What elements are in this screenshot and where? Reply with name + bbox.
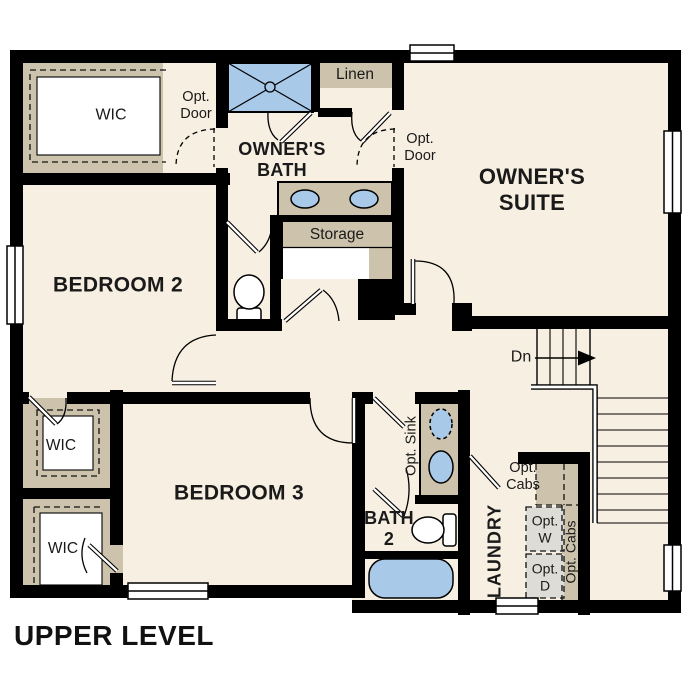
room-label-bedroom2: BEDROOM 2: [53, 274, 183, 299]
storage-interior: [283, 247, 369, 279]
opt-door-right-line2: Door: [404, 148, 435, 165]
annotation-stairs-down: Dn: [511, 349, 531, 368]
toilet-bath2-tank: [443, 514, 456, 546]
owners-sink-right: [350, 190, 378, 208]
annotation-opt-cabs-hall: Opt. Cabs: [506, 460, 540, 494]
floor-plan: WIC Opt. Door OWNER'S BATH Linen Opt. Do…: [0, 0, 687, 687]
room-label-linen: Linen: [336, 66, 374, 84]
opt-door-left-line2: Door: [180, 106, 211, 123]
toilet-owners-bowl: [234, 275, 264, 309]
room-label-bedroom3: BEDROOM 3: [174, 482, 304, 507]
opt-washer-line2: W: [532, 529, 558, 546]
room-label-laundry: LAUNDRY: [484, 504, 505, 598]
floor-plan-drawing: [0, 0, 687, 687]
chase: [358, 279, 395, 320]
optional-sink: [430, 409, 452, 439]
owners-bath-line1: OWNER'S: [238, 139, 325, 160]
owners-suite-line1: OWNER'S: [479, 164, 585, 190]
annotation-opt-sink: Opt. Sink: [403, 416, 420, 476]
bath2-line1: BATH: [364, 508, 414, 529]
room-label-storage: Storage: [310, 226, 364, 244]
opt-door-left-line1: Opt.: [180, 89, 211, 106]
room-label-bath2: BATH 2: [364, 508, 414, 550]
opt-dryer-line2: D: [532, 577, 558, 594]
opt-cabs-box: [536, 464, 580, 505]
storage-side: [369, 247, 392, 279]
opt-cabs-hall-line1: Opt.: [506, 460, 540, 477]
annotation-opt-washer: Opt. W: [532, 512, 558, 545]
bath2-sink: [429, 451, 453, 483]
room-label-wic-middle: WIC: [46, 437, 76, 455]
room-label-owners-bath: OWNER'S BATH: [238, 139, 325, 181]
shower-drain: [265, 82, 275, 92]
opt-dryer-line1: Opt.: [532, 560, 558, 577]
annotation-opt-door-left: Opt. Door: [180, 89, 211, 123]
owners-suite-line2: SUITE: [479, 190, 585, 216]
bath2-line2: 2: [364, 529, 414, 550]
opt-washer-line1: Opt.: [532, 512, 558, 529]
annotation-opt-door-right: Opt. Door: [404, 131, 435, 165]
bathtub: [369, 559, 453, 598]
plan-title: UPPER LEVEL: [14, 620, 214, 652]
room-label-wic-lower: WIC: [48, 540, 78, 558]
toilet-bath2-bowl: [412, 517, 444, 543]
annotation-opt-cabs-side: Opt. Cabs: [563, 520, 580, 583]
opt-door-right-line1: Opt.: [404, 131, 435, 148]
owners-bath-line2: BATH: [238, 160, 325, 181]
owners-sink-left: [291, 190, 319, 208]
annotation-opt-dryer: Opt. D: [532, 560, 558, 593]
room-label-wic-owners: WIC: [95, 107, 126, 126]
room-label-owners-suite: OWNER'S SUITE: [479, 164, 585, 216]
opt-cabs-hall-line2: Cabs: [506, 477, 540, 494]
